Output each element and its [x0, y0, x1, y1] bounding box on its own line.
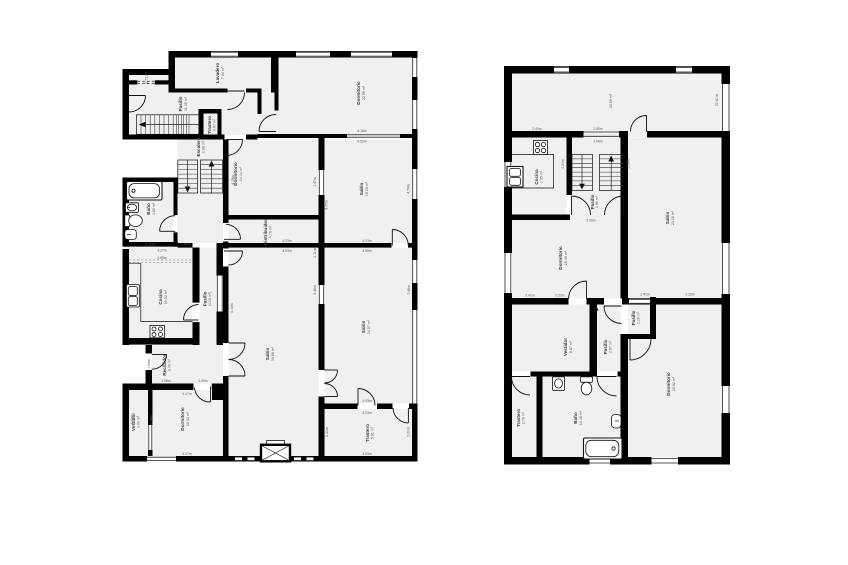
svg-text:2.76 m²: 2.76 m²	[522, 411, 526, 424]
svg-text:Dormitorio: Dormitorio	[180, 407, 185, 431]
svg-text:4.17m: 4.17m	[182, 452, 192, 456]
svg-text:Baño: Baño	[573, 412, 578, 424]
svg-text:2.23m: 2.23m	[555, 294, 565, 298]
svg-text:20.92 m²: 20.92 m²	[672, 376, 676, 391]
svg-text:24.57 m²: 24.57 m²	[367, 319, 371, 334]
svg-text:10.52 m²: 10.52 m²	[164, 289, 168, 304]
svg-text:Dormitorio: Dormitorio	[666, 372, 671, 396]
svg-text:4.74m: 4.74m	[407, 184, 411, 194]
svg-text:Salón: Salón	[359, 183, 364, 196]
svg-text:Lavadero: Lavadero	[215, 63, 220, 84]
svg-text:4.03m: 4.03m	[362, 239, 372, 243]
svg-text:Cocina: Cocina	[158, 289, 163, 305]
svg-text:2.40m: 2.40m	[532, 127, 542, 131]
svg-text:2.95m: 2.95m	[157, 256, 167, 260]
svg-text:14.44 m²: 14.44 m²	[239, 166, 243, 181]
svg-text:3.03 m²: 3.03 m²	[137, 415, 141, 428]
svg-text:Vestidor: Vestidor	[563, 338, 568, 356]
svg-text:2.49 m²: 2.49 m²	[168, 358, 172, 371]
svg-text:7.48m: 7.48m	[407, 285, 411, 295]
svg-text:Recibidor: Recibidor	[162, 354, 167, 375]
svg-text:Pasillo: Pasillo	[178, 96, 183, 111]
svg-text:Dormitorio: Dormitorio	[356, 81, 361, 105]
svg-text:Pasillo: Pasillo	[631, 310, 636, 325]
svg-text:4.53m: 4.53m	[357, 140, 367, 144]
svg-text:4.19m: 4.19m	[231, 175, 235, 185]
svg-text:1.11m: 1.11m	[313, 248, 317, 257]
svg-text:Pasillo: Pasillo	[203, 291, 208, 306]
svg-text:4.17m: 4.17m	[182, 392, 192, 396]
svg-text:1.65m: 1.65m	[181, 242, 191, 246]
svg-text:Baño: Baño	[146, 203, 151, 215]
svg-text:22.59 m²: 22.59 m²	[362, 85, 366, 100]
svg-text:4.10m: 4.10m	[130, 415, 134, 425]
svg-text:2.87 m²: 2.87 m²	[609, 340, 613, 353]
svg-text:10.48 m²: 10.48 m²	[579, 410, 583, 425]
svg-text:2.12m: 2.12m	[145, 242, 155, 246]
svg-text:7.35 m²: 7.35 m²	[540, 170, 544, 183]
svg-text:1.94m: 1.94m	[147, 359, 151, 369]
svg-text:0.97 m²: 0.97 m²	[213, 118, 217, 131]
svg-text:4.03m: 4.03m	[362, 452, 372, 456]
svg-text:39.68 m²: 39.68 m²	[271, 346, 275, 361]
svg-text:Dormitorio: Dormitorio	[558, 246, 563, 270]
svg-text:Distribuidor: Distribuidor	[263, 219, 268, 245]
svg-text:2.90m: 2.90m	[593, 127, 603, 131]
svg-text:23.18 m²: 23.18 m²	[671, 210, 675, 225]
svg-text:2.21m: 2.21m	[407, 427, 411, 437]
svg-text:5.81 m²: 5.81 m²	[371, 426, 375, 439]
svg-text:2.21m: 2.21m	[325, 427, 329, 437]
svg-text:6.14m: 6.14m	[230, 303, 234, 313]
svg-text:3.86 m²: 3.86 m²	[152, 202, 156, 215]
svg-text:1.34m: 1.34m	[150, 415, 154, 425]
svg-text:1.47m: 1.47m	[313, 177, 317, 187]
svg-text:4.70 m²: 4.70 m²	[269, 225, 273, 238]
svg-text:0.71 m²: 0.71 m²	[145, 71, 149, 84]
svg-text:4.03m: 4.03m	[362, 399, 372, 403]
svg-text:Trastero: Trastero	[365, 424, 370, 442]
svg-text:Salón: Salón	[265, 348, 270, 361]
svg-text:Pasillo: Pasillo	[603, 339, 608, 354]
svg-text:4.77m: 4.77m	[325, 200, 329, 210]
svg-text:20.60 m²: 20.60 m²	[609, 93, 613, 108]
svg-text:2.14m: 2.14m	[627, 159, 631, 169]
svg-text:1.08m: 1.08m	[161, 379, 171, 383]
svg-text:9.48m: 9.48m	[313, 285, 317, 295]
svg-text:4.03m: 4.03m	[362, 411, 372, 415]
svg-text:4.03m: 4.03m	[282, 249, 292, 253]
svg-text:Salón: Salón	[665, 212, 670, 225]
svg-text:1.09m: 1.09m	[198, 379, 208, 383]
svg-text:2.23m: 2.23m	[685, 293, 695, 297]
svg-text:Escalera: Escalera	[196, 137, 201, 156]
svg-text:7.04 m²: 7.04 m²	[221, 66, 225, 79]
svg-text:10.02 m²: 10.02 m²	[186, 411, 190, 426]
svg-text:4.59m: 4.59m	[362, 249, 372, 253]
svg-text:20.60 m: 20.60 m	[715, 94, 719, 106]
svg-text:2.06m: 2.06m	[586, 219, 596, 223]
svg-text:2.26 m²: 2.26 m²	[637, 311, 641, 324]
svg-text:15.46 m²: 15.46 m²	[564, 250, 568, 265]
svg-text:2.20m: 2.20m	[561, 159, 565, 169]
svg-text:2.41m: 2.41m	[525, 294, 535, 298]
svg-text:8.87 m²: 8.87 m²	[569, 340, 573, 353]
svg-text:2.06m: 2.06m	[593, 140, 603, 144]
svg-text:Trastero: Trastero	[207, 116, 212, 134]
svg-text:4.18m: 4.18m	[357, 129, 367, 133]
svg-text:19.10 m²: 19.10 m²	[365, 181, 369, 196]
svg-text:Cocina: Cocina	[534, 169, 539, 185]
svg-text:11.38 m²: 11.38 m²	[184, 96, 188, 111]
svg-text:Salón: Salón	[361, 321, 366, 334]
svg-text:2.41m: 2.41m	[640, 293, 650, 297]
svg-text:1.06 m²: 1.06 m²	[595, 195, 599, 208]
svg-text:4.23m: 4.23m	[282, 239, 292, 243]
svg-text:Trastero: Trastero	[516, 409, 521, 427]
svg-text:1.98 m²: 1.98 m²	[202, 140, 206, 153]
svg-text:3.27m: 3.27m	[157, 249, 167, 253]
svg-text:(4.16 m²): (4.16 m²)	[208, 292, 212, 307]
